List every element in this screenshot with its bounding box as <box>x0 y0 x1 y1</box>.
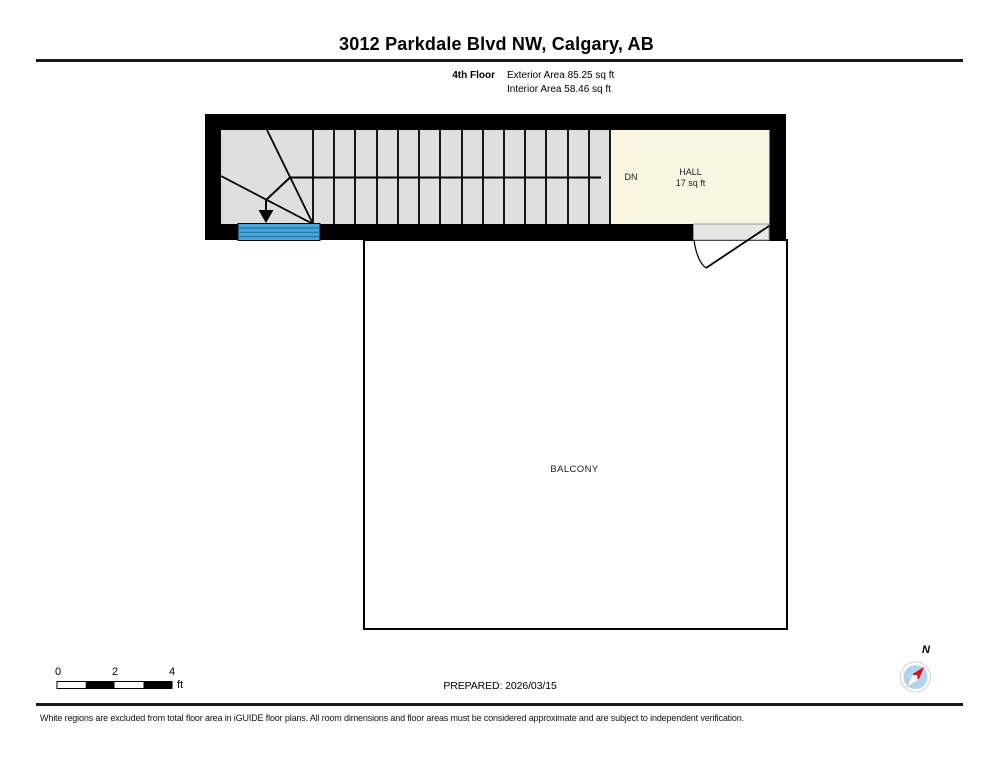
window-symbol <box>238 224 320 241</box>
compass-north-label: N <box>922 644 930 656</box>
hall-name-label: HALL <box>660 167 721 177</box>
scale-unit-label: ft <box>177 679 183 691</box>
door-opening <box>694 224 770 240</box>
floorplan-page: 3012 Parkdale Blvd NW, Calgary, AB 4th F… <box>0 0 993 768</box>
scale-bar <box>57 682 172 689</box>
balcony-label: BALCONY <box>524 465 625 475</box>
disclaimer-text: White regions are excluded from total fl… <box>40 713 970 723</box>
prepared-date: PREPARED: 2026/03/15 <box>397 680 603 692</box>
balcony-region <box>364 240 787 629</box>
scale-tick-0: 0 <box>48 666 68 678</box>
footer-divider <box>36 703 963 706</box>
scale-tick-2: 2 <box>105 666 125 678</box>
scale-tick-4: 4 <box>162 666 182 678</box>
hall-area-label: 17 sq ft <box>660 178 721 188</box>
stairs-dn-label: DN <box>616 172 646 182</box>
compass-icon <box>901 662 931 692</box>
floor-plan-svg <box>0 0 993 768</box>
